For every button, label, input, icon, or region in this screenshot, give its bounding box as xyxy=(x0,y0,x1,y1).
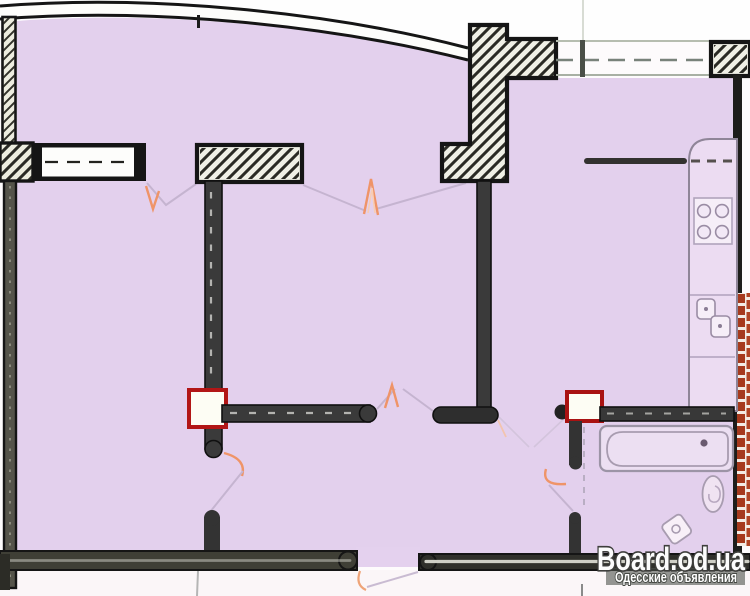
svg-text:Одесские объявления: Одесские объявления xyxy=(615,570,737,586)
